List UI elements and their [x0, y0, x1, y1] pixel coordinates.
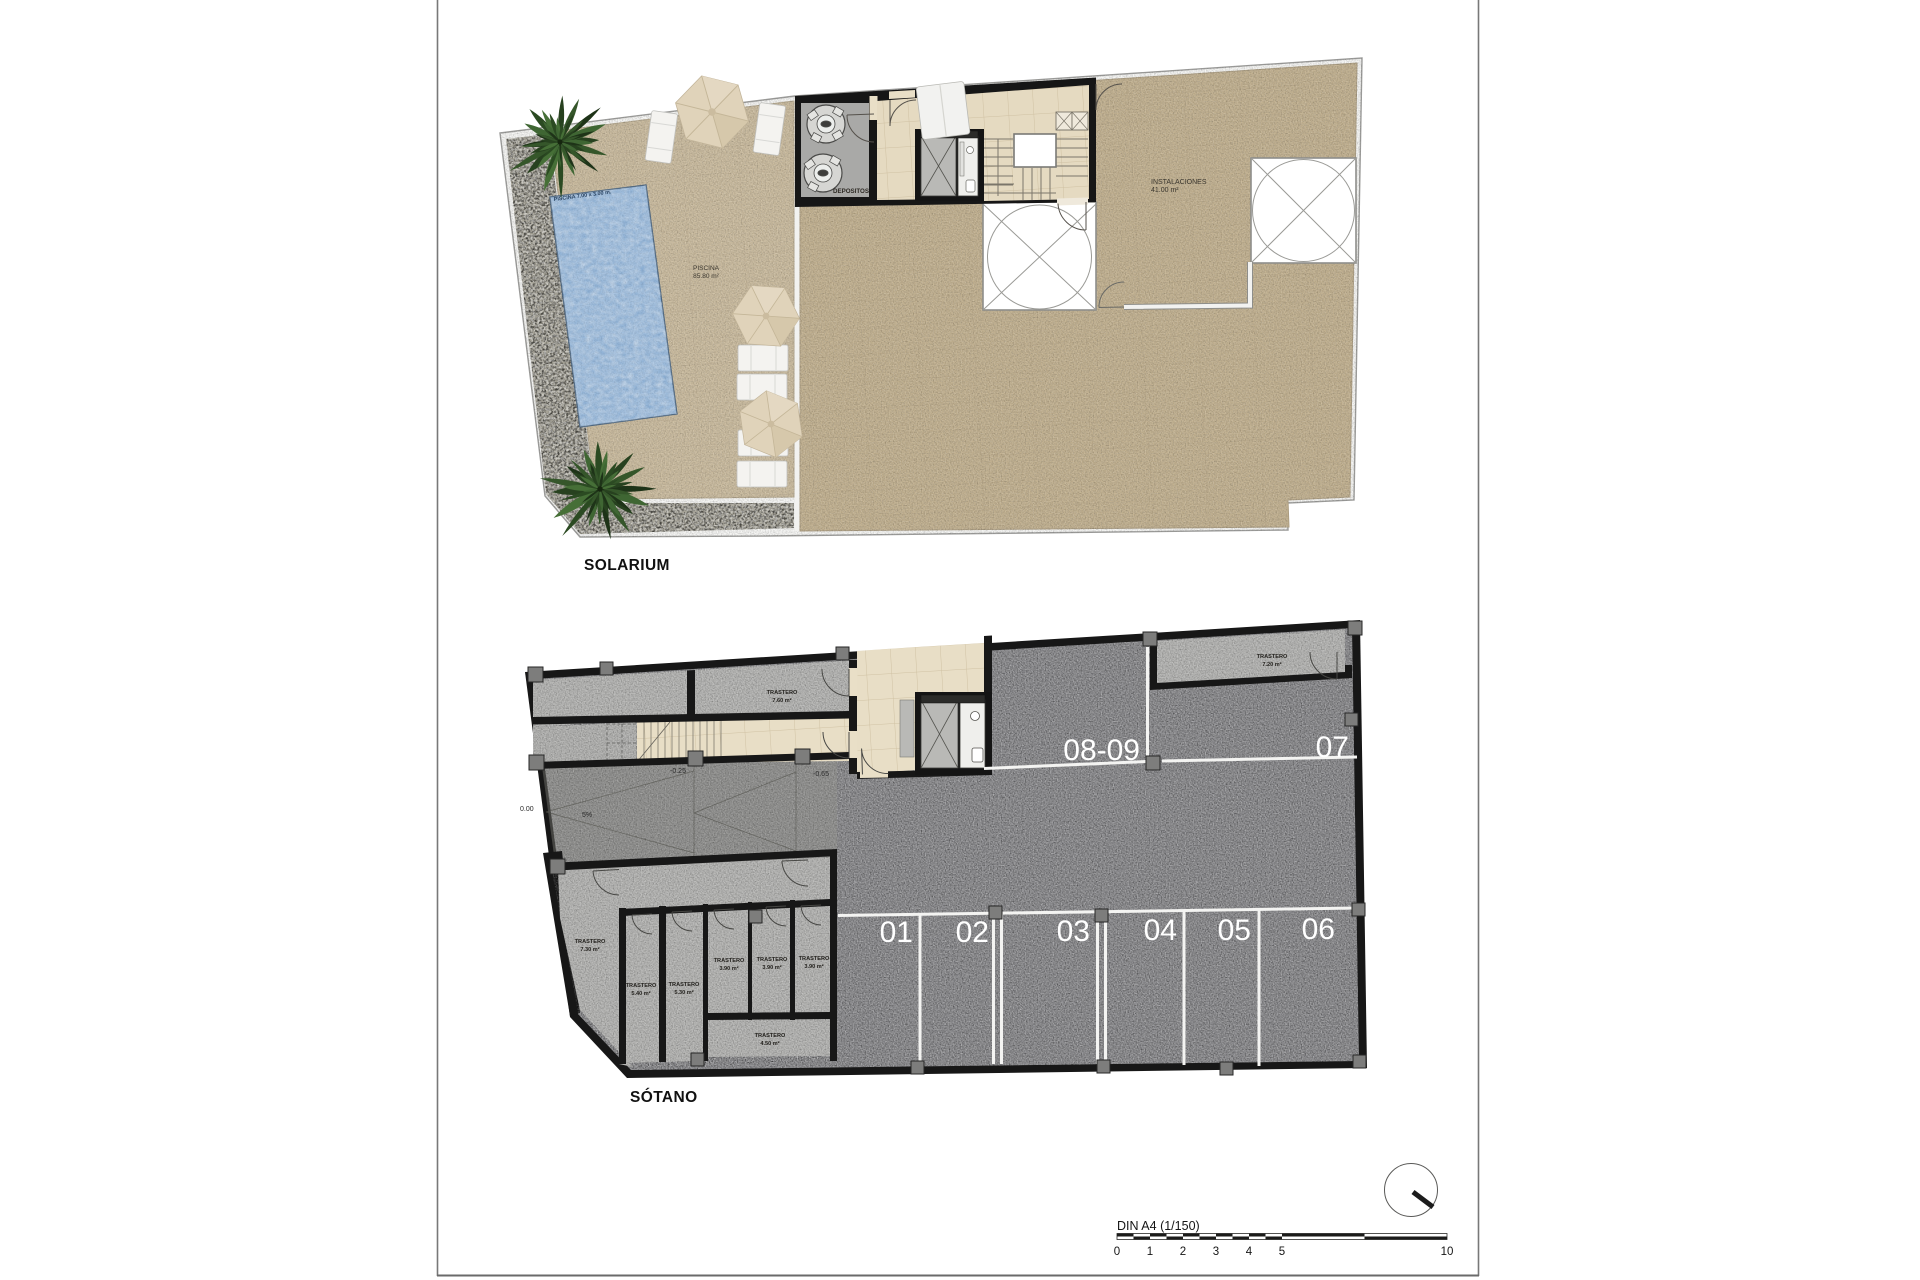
svg-text:10: 10: [1441, 1246, 1454, 1258]
svg-text:06: 06: [1302, 913, 1335, 946]
svg-text:3.90 m²: 3.90 m²: [762, 964, 781, 971]
svg-text:01: 01: [880, 916, 913, 949]
svg-text:-0.65: -0.65: [813, 771, 829, 778]
svg-text:0: 0: [1114, 1246, 1120, 1258]
svg-text:4: 4: [1246, 1246, 1253, 1258]
svg-text:7.20 m²: 7.20 m²: [1262, 661, 1281, 668]
svg-text:TRASTERO: TRASTERO: [626, 983, 657, 989]
svg-text:7.60 m²: 7.60 m²: [772, 697, 791, 704]
svg-text:SOLARIUM: SOLARIUM: [584, 557, 670, 574]
svg-text:02: 02: [956, 916, 989, 949]
svg-text:3.90 m²: 3.90 m²: [804, 963, 823, 970]
svg-text:DIN A4 (1/150): DIN A4 (1/150): [1117, 1219, 1200, 1233]
svg-text:0.00: 0.00: [520, 806, 534, 813]
svg-text:SÓTANO: SÓTANO: [630, 1088, 698, 1106]
svg-text:TRASTERO: TRASTERO: [767, 690, 798, 696]
svg-text:41.00 m²: 41.00 m²: [1151, 187, 1179, 194]
svg-text:DEPOSITOS: DEPOSITOS: [833, 188, 869, 195]
svg-text:1: 1: [1147, 1246, 1153, 1258]
svg-text:85.80 m²: 85.80 m²: [693, 273, 719, 280]
svg-text:TRASTERO: TRASTERO: [1257, 654, 1288, 660]
svg-text:03: 03: [1057, 915, 1090, 948]
svg-text:5.30 m²: 5.30 m²: [674, 989, 693, 996]
svg-text:PISCINA: PISCINA: [693, 265, 720, 272]
svg-text:-0.25: -0.25: [670, 768, 686, 775]
svg-text:05: 05: [1218, 914, 1251, 947]
svg-text:TRASTERO: TRASTERO: [669, 982, 700, 988]
svg-text:TRASTERO: TRASTERO: [757, 957, 788, 963]
svg-text:3: 3: [1213, 1246, 1219, 1258]
svg-text:TRASTERO: TRASTERO: [575, 939, 606, 945]
svg-text:04: 04: [1144, 914, 1177, 947]
svg-text:5: 5: [1279, 1246, 1285, 1258]
svg-text:TRASTERO: TRASTERO: [799, 956, 830, 962]
svg-text:4.50 m²: 4.50 m²: [760, 1040, 779, 1047]
svg-text:5%: 5%: [582, 812, 592, 819]
svg-text:3.90 m²: 3.90 m²: [719, 965, 738, 972]
svg-text:08-09: 08-09: [1063, 734, 1140, 767]
svg-text:INSTALACIONES: INSTALACIONES: [1151, 179, 1207, 186]
svg-text:7.30 m²: 7.30 m²: [580, 946, 599, 953]
svg-text:TRASTERO: TRASTERO: [714, 958, 745, 964]
svg-text:2: 2: [1180, 1246, 1186, 1258]
svg-text:5.40 m²: 5.40 m²: [631, 990, 650, 997]
svg-text:07: 07: [1316, 731, 1349, 764]
svg-text:TRASTERO: TRASTERO: [755, 1033, 786, 1039]
